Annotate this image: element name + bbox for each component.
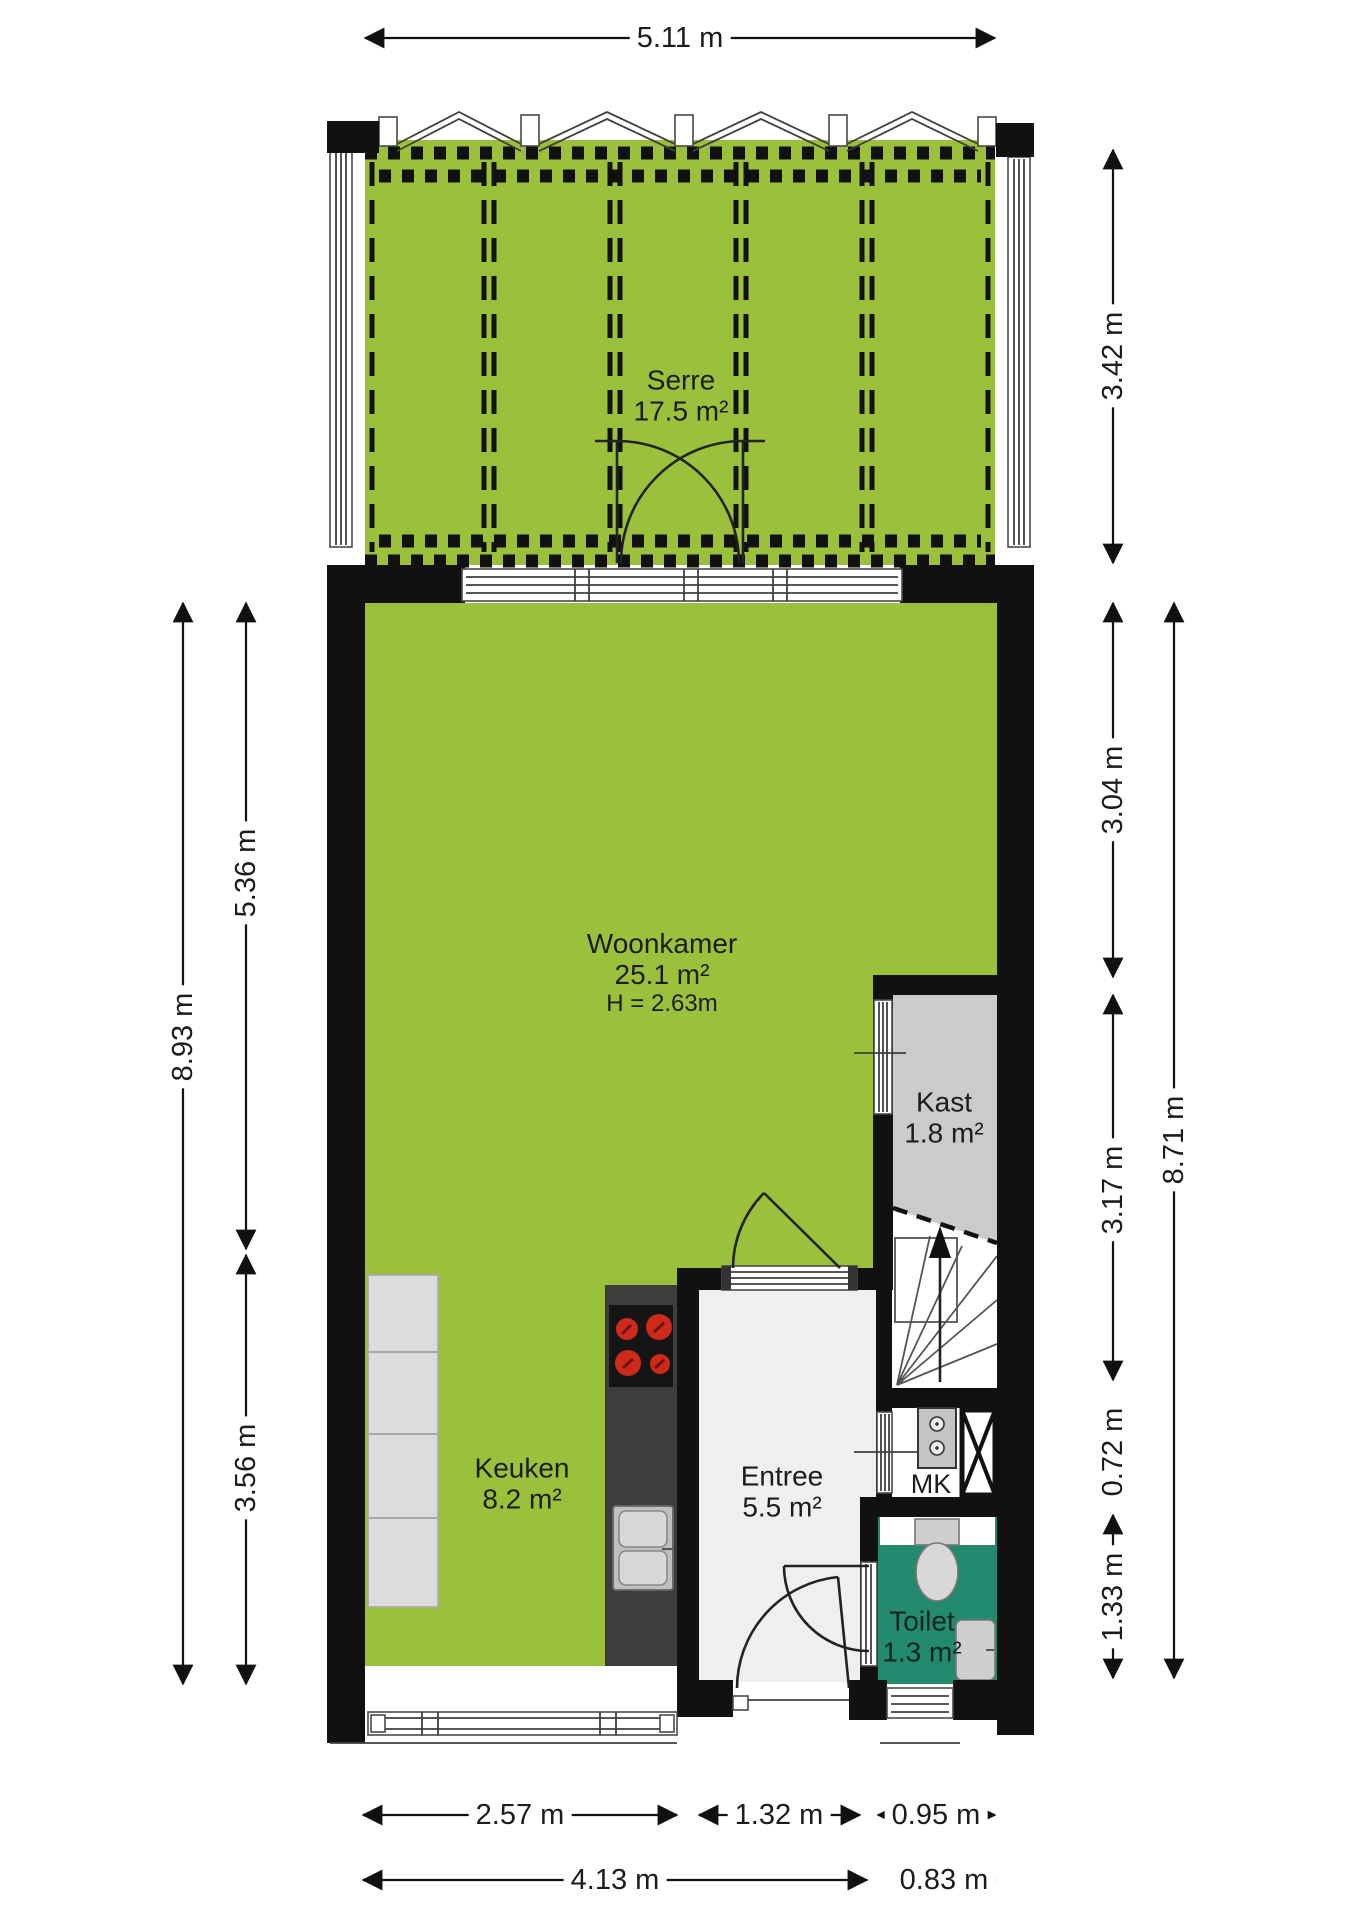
room-area: 8.2 m²	[475, 1484, 570, 1515]
room-name: Kast	[904, 1087, 983, 1118]
serre-window-right	[1008, 157, 1030, 547]
north-window	[462, 569, 902, 601]
toilet-sink-icon	[956, 1620, 995, 1680]
dim-label-right-toilet: 1.33 m	[1097, 1546, 1129, 1649]
dim-label-right-mk: 0.72 m	[1097, 1401, 1129, 1504]
room-name: Entree	[741, 1461, 824, 1492]
dim-label-bottom-main: 4.13 m	[564, 1864, 667, 1896]
room-name: Toilet	[882, 1606, 961, 1637]
dim-label-right-total: 8.71 m	[1158, 1089, 1190, 1192]
kitchen-window	[330, 1666, 677, 1743]
floorplan-canvas: Serre 17.5 m² Woonkamer 25.1 m² H = 2.63…	[0, 0, 1358, 1920]
dim-label-right-mid: 3.17 m	[1097, 1139, 1129, 1242]
toilet-window	[880, 1688, 960, 1743]
room-area: 25.1 m²	[587, 960, 737, 991]
serre-room	[327, 112, 1034, 565]
room-area: 1.8 m²	[904, 1118, 983, 1149]
room-label-woonkamer: Woonkamer 25.1 m² H = 2.63m	[587, 928, 737, 1018]
sink-icon	[613, 1506, 673, 1590]
dim-label-bottom-right: 0.83 m	[893, 1864, 996, 1896]
meter-panel-icon	[918, 1408, 956, 1468]
kitchen-counter-right	[605, 1285, 677, 1666]
dim-label-bottom-keuken: 2.57 m	[469, 1799, 572, 1831]
dim-label-right-upper: 3.04 m	[1097, 739, 1129, 842]
room-name: Woonkamer	[587, 928, 737, 959]
cooktop-icon	[609, 1305, 673, 1387]
kitchen-counter-left	[368, 1275, 438, 1607]
room-height-note: H = 2.63m	[587, 991, 737, 1018]
serre-corner-right	[996, 123, 1034, 157]
dim-label-bottom-toilet: 0.95 m	[885, 1799, 988, 1831]
dim-label-left-total: 8.93 m	[167, 986, 199, 1089]
room-label-serre: Serre 17.5 m²	[634, 365, 729, 428]
serre-window-left	[330, 151, 352, 547]
dim-label-left-upper: 5.36 m	[230, 822, 262, 925]
toilet-icon	[915, 1519, 959, 1601]
room-area: 17.5 m²	[634, 396, 729, 427]
room-name: Serre	[634, 365, 729, 396]
shaft-icon	[962, 1410, 995, 1495]
room-label-entree: Entree 5.5 m²	[741, 1461, 824, 1524]
dim-label-top-width: 5.11 m	[630, 22, 731, 54]
room-area: 1.3 m²	[882, 1637, 961, 1668]
room-area: 5.5 m²	[741, 1492, 824, 1523]
serre-corner-left	[327, 121, 379, 153]
room-label-mk: MK	[911, 1469, 952, 1499]
room-label-keuken: Keuken 8.2 m²	[475, 1453, 570, 1516]
dim-label-serre-depth: 3.42 m	[1097, 305, 1129, 408]
dim-label-left-lower: 3.56 m	[230, 1417, 262, 1520]
room-label-kast: Kast 1.8 m²	[904, 1087, 983, 1150]
room-name: Keuken	[475, 1453, 570, 1484]
room-label-toilet: Toilet 1.3 m²	[882, 1606, 961, 1669]
dim-label-bottom-entree: 1.32 m	[728, 1799, 831, 1831]
